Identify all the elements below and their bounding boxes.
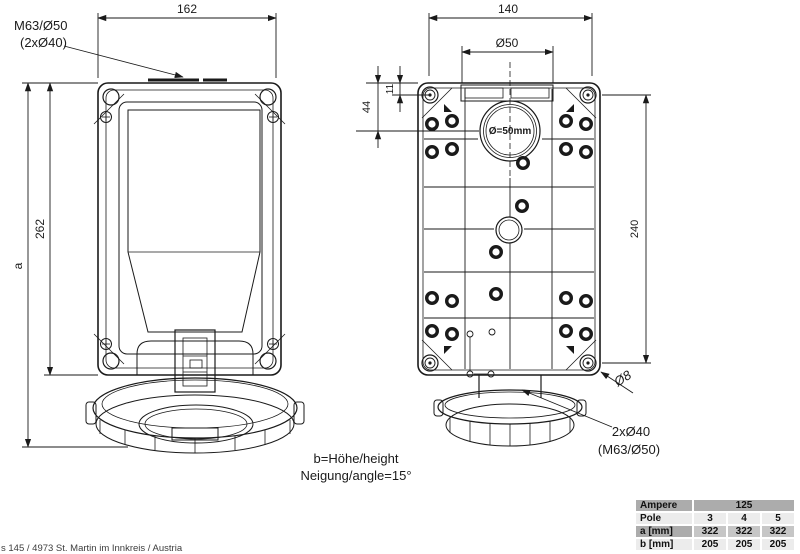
back-top-recess: [461, 85, 553, 101]
spec-label-pole: Pole: [636, 513, 692, 524]
dim-back-height: 240: [602, 95, 651, 363]
dim-front-overall-value: a: [11, 262, 25, 269]
spec-table: Ampere 125 Pole 3 4 5 a [mm] 322 322 322…: [634, 498, 796, 552]
back-mount-hole-callout: Ø8: [601, 367, 635, 393]
back-callout-line1: 2xØ40: [612, 424, 650, 439]
spec-value-a-3: 322: [762, 526, 794, 537]
spec-value-a-2: 322: [728, 526, 760, 537]
screw-icon: [101, 112, 279, 350]
drawing-notes: b=Höhe/height Neigung/angle=15°: [300, 451, 411, 483]
spec-row-ampere: Ampere 125: [636, 500, 794, 511]
front-enclosure-outline: [98, 80, 281, 375]
dim-offset-small-value: 11: [385, 83, 396, 94]
dim-front-width-value: 162: [177, 2, 197, 16]
dim-back-height-value: 240: [629, 220, 641, 238]
dim-back-entry-value: Ø50: [496, 36, 519, 50]
front-callout-line1: M63/Ø50: [14, 18, 67, 33]
back-entry-knockout: Ø=50mm: [480, 62, 540, 178]
spec-row-pole: Pole 3 4 5: [636, 513, 794, 524]
spec-value-pole-1: 3: [694, 513, 726, 524]
back-cable-knockouts: [427, 116, 592, 340]
front-entry-callout: M63/Ø50 (2xØ40): [14, 18, 183, 77]
back-callout-line2: (M63/Ø50): [598, 442, 660, 457]
dim-front-height: 262: [22, 83, 98, 375]
spec-value-a-1: 322: [694, 526, 726, 537]
dim-back-width-value: 140: [498, 2, 518, 16]
spec-value-b-3: 205: [762, 539, 794, 550]
front-corner-screws: [94, 89, 285, 369]
dim-front-height-value: 262: [33, 219, 47, 239]
knockout-diameter-label: Ø=50mm: [489, 126, 532, 137]
front-callout-line2: (2xØ40): [20, 35, 67, 50]
spec-value-b-2: 205: [728, 539, 760, 550]
back-view: Ø=50mm: [356, 2, 660, 457]
spec-value-pole-3: 5: [762, 513, 794, 524]
technical-drawing-page: 162 262 a M63/Ø50 (2xØ40): [0, 0, 800, 554]
spec-value-b-1: 205: [694, 539, 726, 550]
spec-label-ampere: Ampere: [636, 500, 692, 511]
spec-label-b: b [mm]: [636, 539, 692, 550]
spec-value-ampere: 125: [694, 500, 794, 511]
spec-row-a: a [mm] 322 322 322: [636, 526, 794, 537]
spec-label-a: a [mm]: [636, 526, 692, 537]
back-gland-ring: [434, 375, 586, 446]
dim-back-entry: Ø50: [462, 36, 553, 83]
note-angle: Neigung/angle=15°: [300, 468, 411, 483]
dim-front-overall-height: a: [11, 83, 128, 447]
back-entry-callout: 2xØ40 (M63/Ø50): [522, 390, 660, 457]
dim-mount-hole-value: Ø8: [610, 367, 634, 390]
dim-front-width: 162: [98, 2, 276, 78]
front-locking-ring: [86, 378, 304, 453]
spec-value-pole-2: 4: [728, 513, 760, 524]
front-view: 162 262 a M63/Ø50 (2xØ40): [11, 2, 304, 453]
note-height: b=Höhe/height: [314, 451, 399, 466]
spec-row-b: b [mm] 205 205 205: [636, 539, 794, 550]
footer-address: s 145 / 4973 St. Martin im Innkreis / Au…: [1, 543, 182, 554]
dim-offset-large-value: 44: [361, 101, 373, 113]
drawing-canvas: 162 262 a M63/Ø50 (2xØ40): [0, 0, 800, 554]
